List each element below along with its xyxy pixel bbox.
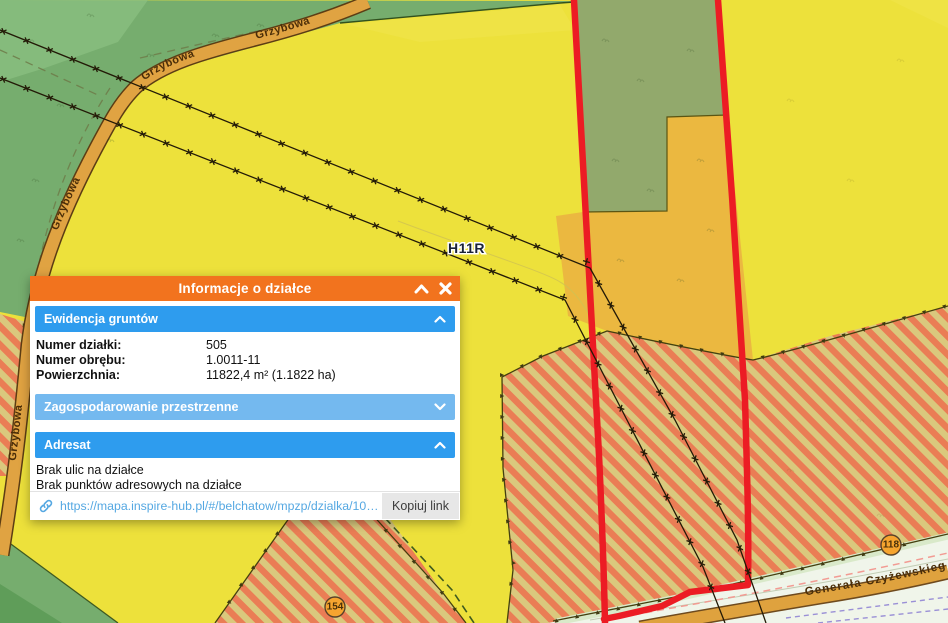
popup-footer: https://mapa.inspire-hub.pl/#/belchatow/… <box>30 491 460 520</box>
road-badge-154: 154 <box>325 597 345 617</box>
close-icon <box>439 282 452 295</box>
parcel-info-popup: Informacje o działce Ewidencja gruntów N… <box>30 276 460 520</box>
field-value: 11822,4 m² (1.1822 ha) <box>206 368 336 383</box>
section-zagospodarowanie[interactable]: Zagospodarowanie przestrzenne <box>35 394 455 420</box>
svg-text:154: 154 <box>327 602 344 613</box>
close-popup-button[interactable] <box>436 280 454 298</box>
svg-text:118: 118 <box>883 540 900 551</box>
section-title: Ewidencja gruntów <box>44 312 158 326</box>
popup-header[interactable]: Informacje o działce <box>30 276 460 301</box>
field-row: Powierzchnia: 11822,4 m² (1.1822 ha) <box>36 368 454 383</box>
chevron-down-icon <box>434 400 446 414</box>
copy-link-button[interactable]: Kopiuj link <box>382 493 459 519</box>
collapse-popup-button[interactable] <box>412 280 430 298</box>
adresat-content: Brak ulic na działce Brak punktów adreso… <box>30 458 460 493</box>
section-ewidencja-gruntow[interactable]: Ewidencja gruntów <box>35 306 455 332</box>
field-label: Numer działki: <box>36 338 206 353</box>
field-value: 1.0011-11 <box>206 353 260 368</box>
ewidencja-fields: Numer działki: 505 Numer obrębu: 1.0011-… <box>30 332 460 386</box>
chevron-up-icon <box>434 312 446 326</box>
field-row: Numer obrębu: 1.0011-11 <box>36 353 454 368</box>
field-label: Numer obrębu: <box>36 353 206 368</box>
parcel-link-url[interactable]: https://mapa.inspire-hub.pl/#/belchatow/… <box>60 499 381 513</box>
zone-label-h11r: H11R <box>448 240 485 256</box>
road-badge-118: 118 <box>881 535 901 555</box>
section-adresat[interactable]: Adresat <box>35 432 455 458</box>
field-row: Numer działki: 505 <box>36 338 454 353</box>
chevron-up-icon <box>434 438 446 452</box>
popup-title: Informacje o działce <box>30 281 460 296</box>
link-icon <box>39 499 53 513</box>
section-title: Adresat <box>44 438 91 452</box>
section-title: Zagospodarowanie przestrzenne <box>44 400 238 414</box>
field-value: 505 <box>206 338 227 353</box>
chevron-up-icon <box>414 283 429 294</box>
adresat-line: Brak ulic na działce <box>36 463 454 478</box>
field-label: Powierzchnia: <box>36 368 206 383</box>
